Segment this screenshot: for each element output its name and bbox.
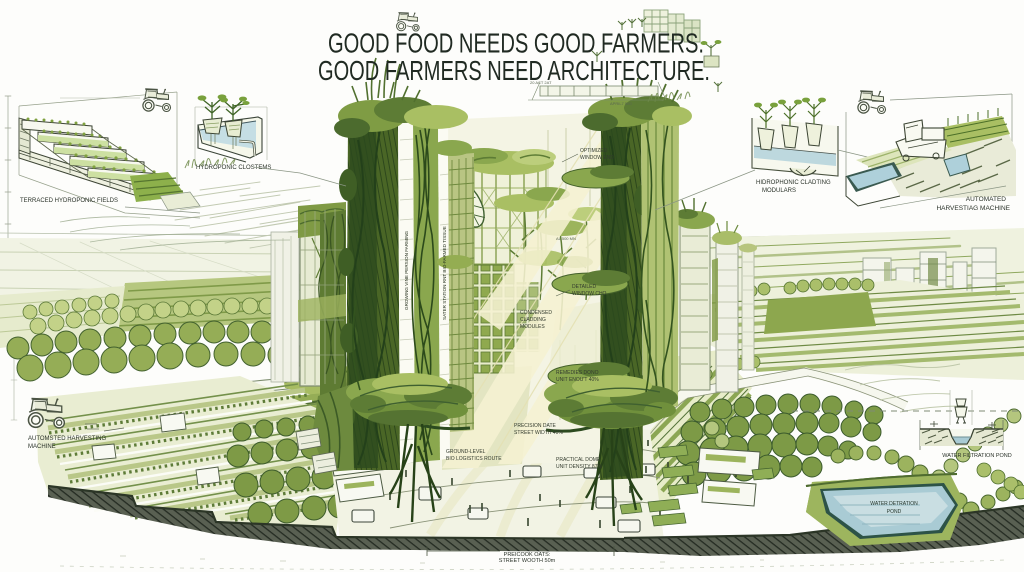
svg-text:WATER DETRATION: WATER DETRATION <box>870 501 918 507</box>
svg-text:DETAILED: DETAILED <box>572 284 596 290</box>
svg-text:GROWING VINE PERSION FARMING: GROWING VINE PERSION FARMING <box>404 230 409 310</box>
svg-text:HIDROPHONIC CLADTING: HIDROPHONIC CLADTING <box>756 180 831 186</box>
svg-text:CONDENSED: CONDENSED <box>520 310 552 316</box>
svg-text:SATER STATION RNT BIO-FARMED T: SATER STATION RNT BIO-FARMED TISSUE <box>442 226 447 320</box>
svg-text:MODULARS: MODULARS <box>762 188 796 194</box>
svg-text:BIO LOGISTICS ROUTE: BIO LOGISTICS ROUTE <box>446 456 502 462</box>
svg-text:GROUND-LEVEL: GROUND-LEVEL <box>446 449 486 455</box>
svg-text:STREET WIDTH 40%: STREET WIDTH 40% <box>514 430 563 436</box>
svg-text:WINDOW END: WINDOW END <box>580 155 614 161</box>
svg-text:HARVESTIAG MACHINE: HARVESTIAG MACHINE <box>936 205 1010 212</box>
svg-text:MODULES: MODULES <box>520 324 545 330</box>
svg-text:OPTIMIZED: OPTIMIZED <box>580 148 608 154</box>
svg-text:AL 500 MN: AL 500 MN <box>556 236 576 241</box>
svg-text:AUTOMSTED HARVESTING: AUTOMSTED HARVESTING <box>28 436 106 442</box>
svg-text:PRECISION DATE: PRECISION DATE <box>514 423 557 429</box>
svg-text:GOOD FARMERS NEED ARCHITECTURE: GOOD FARMERS NEED ARCHITECTURE. <box>318 55 710 86</box>
svg-text:WINDOW CHO: WINDOW CHO <box>572 291 607 297</box>
svg-text:UNIT DENSITY 87%: UNIT DENSITY 87% <box>556 464 602 470</box>
svg-text:APRIL7 500: APRIL7 500 <box>610 101 632 106</box>
svg-text:POND: POND <box>887 509 902 515</box>
svg-text:MACHINE: MACHINE <box>28 444 56 450</box>
svg-text:WATER FILTRATION POND: WATER FILTRATION POND <box>942 453 1011 459</box>
svg-text:UNIT ENOU'T 40%: UNIT ENOU'T 40% <box>556 377 599 383</box>
svg-text:AUTOMATED: AUTOMATED <box>966 196 1007 203</box>
svg-text:TERRACED HYDROPONIC FIELDS: TERRACED HYDROPONIC FIELDS <box>20 198 118 204</box>
svg-text:REMEDIES DONO: REMEDIES DONO <box>556 370 599 376</box>
svg-text:CLADDING: CLADDING <box>520 317 546 323</box>
svg-text:GOOD FOOD NEEDS GOOD FARMERS.: GOOD FOOD NEEDS GOOD FARMERS. <box>328 28 704 59</box>
svg-text:STREET WOOTH 50m: STREET WOOTH 50m <box>499 558 556 564</box>
svg-text:PRACTICAL DOME: PRACTICAL DOME <box>556 457 601 463</box>
